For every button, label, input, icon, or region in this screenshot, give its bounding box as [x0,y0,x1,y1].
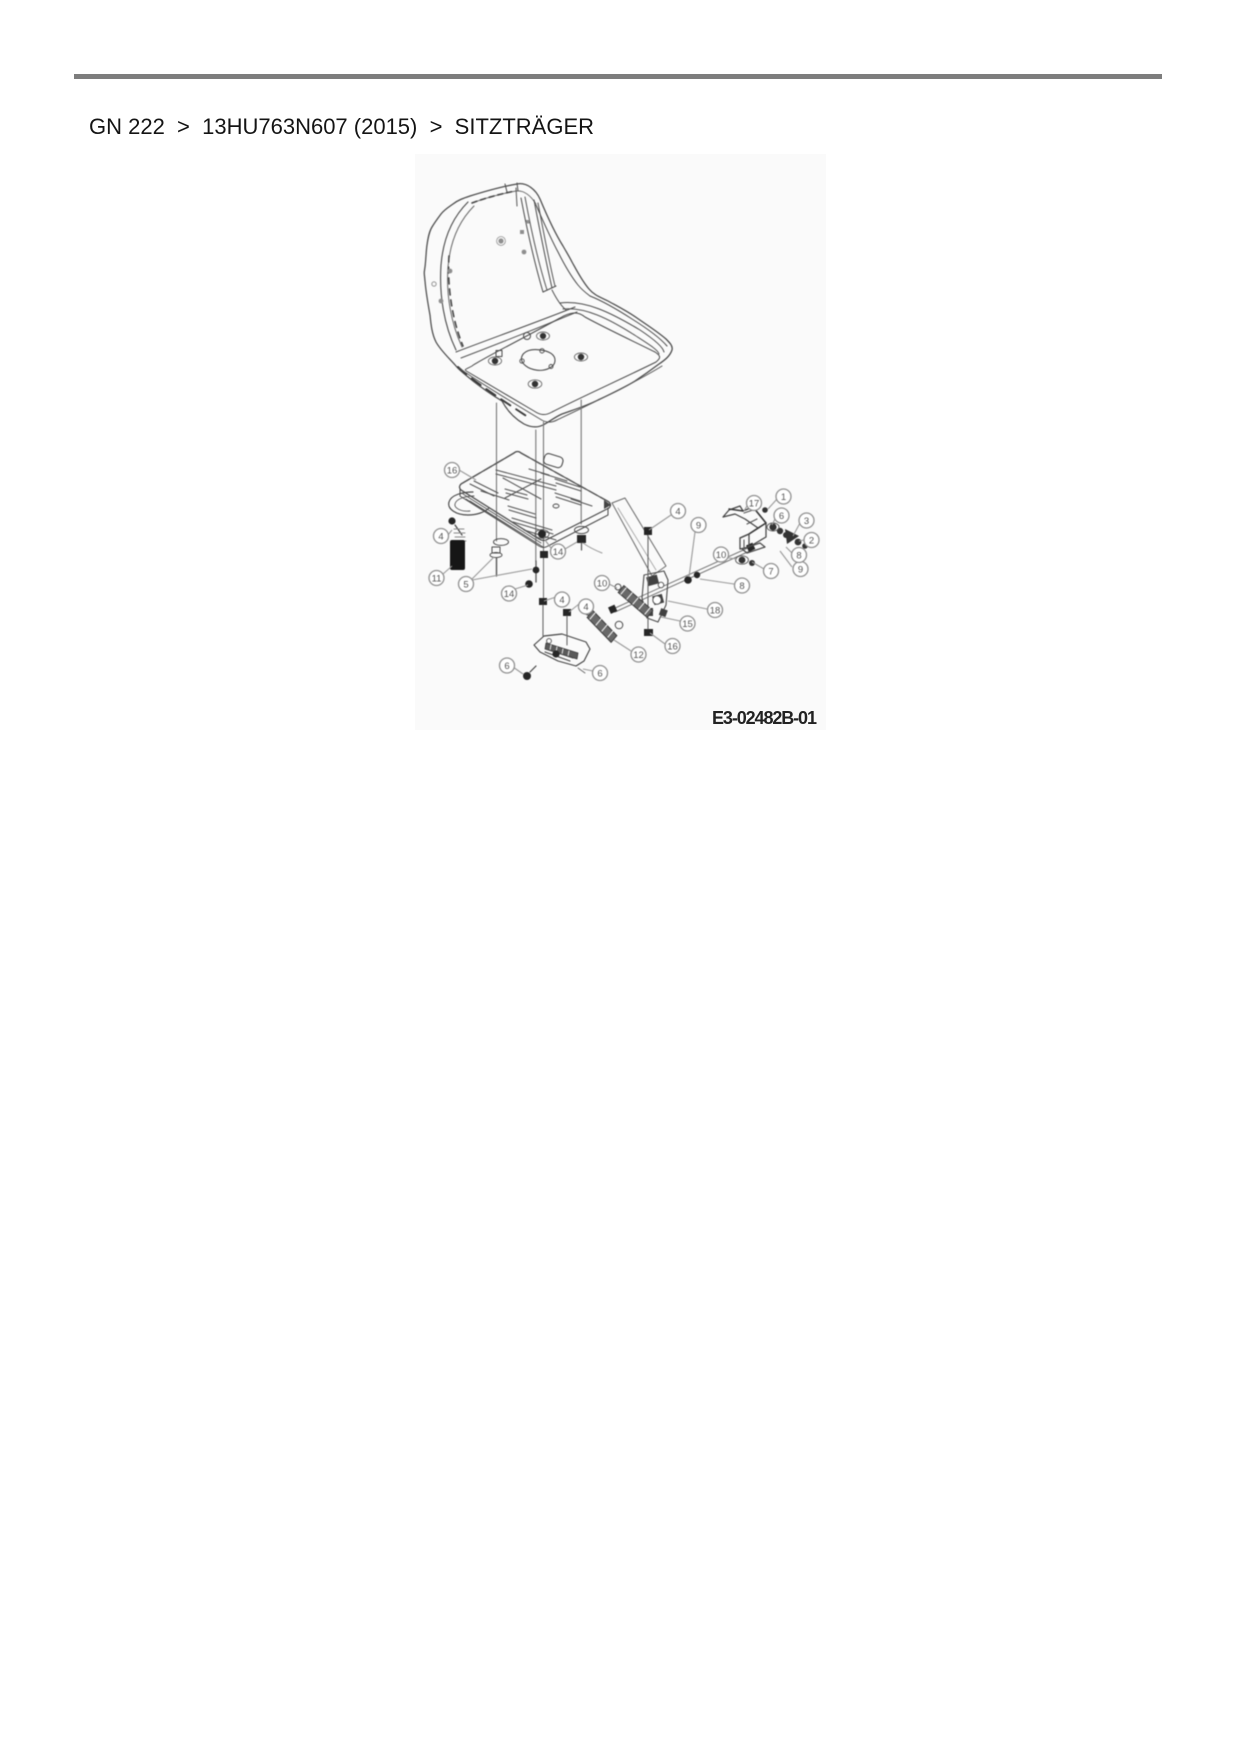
svg-text:6: 6 [597,668,602,679]
svg-text:4: 4 [583,602,588,613]
svg-text:8: 8 [796,550,801,561]
svg-text:3: 3 [804,516,809,527]
svg-text:6: 6 [504,661,509,672]
svg-text:9: 9 [798,564,803,575]
svg-text:1: 1 [781,492,786,503]
svg-text:8: 8 [739,581,744,592]
svg-text:6: 6 [779,511,784,522]
svg-text:7: 7 [768,566,773,577]
svg-text:9: 9 [696,520,701,531]
svg-text:12: 12 [633,650,644,661]
svg-text:5: 5 [463,579,468,590]
svg-text:14: 14 [553,547,564,558]
svg-text:16: 16 [447,465,458,476]
svg-text:14: 14 [504,589,515,600]
svg-text:11: 11 [432,573,442,584]
svg-text:4: 4 [675,506,680,517]
svg-text:10: 10 [597,578,608,589]
svg-text:16: 16 [667,641,678,652]
svg-text:17: 17 [749,498,760,509]
svg-text:4: 4 [438,531,443,542]
svg-text:15: 15 [682,619,693,630]
svg-text:4: 4 [559,595,564,606]
svg-text:2: 2 [809,535,814,546]
svg-text:10: 10 [716,550,727,561]
svg-text:18: 18 [710,605,721,616]
